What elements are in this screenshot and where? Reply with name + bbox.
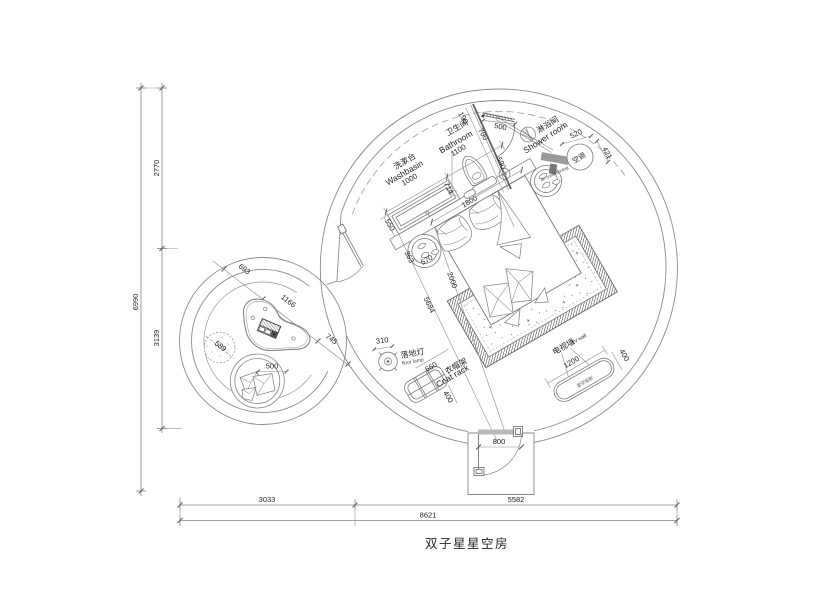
svg-text:双子星星空房: 双子星星空房	[425, 536, 509, 551]
svg-text:2000: 2000	[445, 271, 459, 290]
svg-text:310: 310	[375, 335, 389, 346]
svg-text:421: 421	[600, 145, 614, 160]
svg-text:400: 400	[441, 389, 455, 404]
svg-text:590: 590	[495, 155, 508, 170]
svg-text:3139: 3139	[152, 330, 161, 347]
svg-text:TV wall: TV wall	[571, 333, 588, 346]
svg-text:745: 745	[324, 332, 339, 347]
svg-text:500: 500	[266, 362, 279, 371]
svg-text:400: 400	[617, 347, 631, 362]
svg-text:800: 800	[493, 437, 506, 446]
svg-text:2770: 2770	[152, 160, 161, 177]
svg-text:5582: 5582	[508, 495, 525, 504]
svg-text:693: 693	[237, 262, 252, 277]
svg-text:1166: 1166	[279, 293, 297, 310]
svg-text:1200: 1200	[562, 354, 581, 370]
svg-text:8621: 8621	[420, 511, 437, 520]
svg-text:6990: 6990	[131, 294, 140, 311]
svg-text:5684: 5684	[422, 295, 437, 314]
svg-text:3033: 3033	[259, 495, 276, 504]
